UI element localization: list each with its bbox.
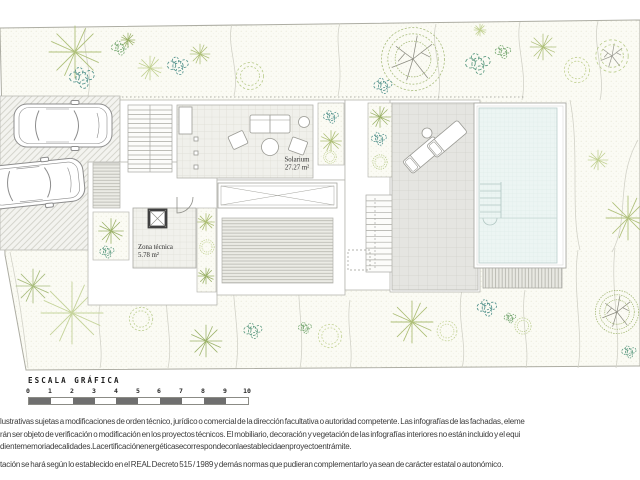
- disclaimer-line-2: rán ser objeto de verificación o modific…: [0, 430, 520, 439]
- wood-deck: [483, 268, 562, 288]
- solarium-label: Solarium 27.27 m²: [285, 157, 311, 172]
- louver-roof: [222, 218, 333, 283]
- scale-tick: 0: [26, 387, 30, 395]
- scale-tick: 3: [92, 387, 96, 395]
- scale-bar-segment: [204, 398, 226, 404]
- scale-tick: 6: [157, 387, 161, 395]
- side-table: [422, 128, 432, 138]
- tree-symbol: [198, 214, 215, 231]
- scale-tick: 8: [201, 387, 205, 395]
- svg-text:Zona técnica: Zona técnica: [138, 244, 173, 251]
- svg-text:27.27 m²: 27.27 m²: [285, 165, 309, 172]
- tree-symbol: [190, 44, 210, 64]
- tree-symbol: [49, 26, 101, 78]
- tree-symbol: [198, 268, 214, 284]
- scale-tick: 4: [114, 387, 118, 395]
- tree-symbol: [16, 269, 50, 303]
- disclaimer-line-3: diente memoria de calidades. La certific…: [0, 442, 352, 451]
- disclaimer-line-4: tación se hará según lo establecido en e…: [0, 460, 503, 469]
- swimming-pool: [474, 103, 566, 268]
- scale-tick: 9: [223, 387, 227, 395]
- disclaimer-line-1: lustrativas sujetas a modificaciones de …: [0, 417, 525, 426]
- tree-symbol: [121, 33, 135, 47]
- graphic-scale: ESCALA GRÁFICA 0 1 2 3 4 5 6 7 8 9 10: [28, 376, 258, 408]
- tree-symbol: [370, 107, 391, 128]
- tree-symbol: [474, 24, 486, 36]
- skylight-panel: [218, 183, 337, 208]
- svg-text:5.78 m²: 5.78 m²: [138, 252, 159, 259]
- scale-tick: 1: [48, 387, 52, 395]
- scale-bar-segment: [29, 398, 51, 404]
- scale-tick: 2: [70, 387, 74, 395]
- car: [14, 101, 112, 151]
- site-plan-drawing: Solarium 27.27 m² Zona técnica 5.78 m²: [0, 0, 640, 374]
- pool-water: [479, 108, 557, 263]
- stairs-main: [128, 105, 172, 172]
- scale-title: ESCALA GRÁFICA: [28, 376, 121, 385]
- svg-text:Solarium: Solarium: [285, 157, 311, 164]
- scale-tick: 10: [243, 387, 251, 395]
- tree-symbol: [138, 56, 162, 80]
- tree-symbol: [530, 34, 556, 60]
- tree-symbol: [190, 325, 222, 357]
- scale-bar-segment: [116, 398, 138, 404]
- chimney-skylight: [149, 210, 166, 227]
- scale-bar-segment: [160, 398, 182, 404]
- louver-panel: [93, 163, 120, 208]
- architectural-site-plan-page: Solarium 27.27 m² Zona técnica 5.78 m²: [0, 0, 640, 480]
- scale-bar-segment: [73, 398, 95, 404]
- tree-symbol: [588, 150, 608, 170]
- scale-bar: [28, 397, 249, 405]
- scale-tick: 7: [179, 387, 183, 395]
- tree-symbol: [391, 301, 433, 343]
- tree-symbol: [99, 219, 124, 244]
- tree-symbol: [321, 131, 342, 152]
- scale-tick: 5: [136, 387, 140, 395]
